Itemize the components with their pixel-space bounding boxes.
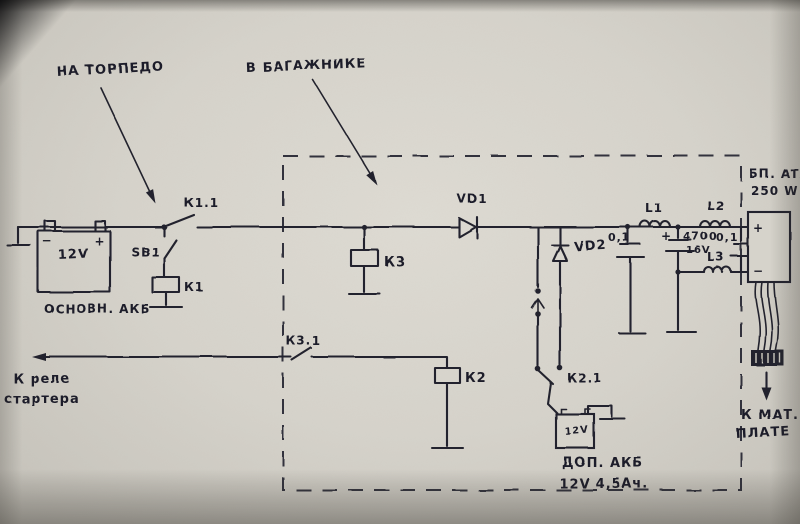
main-battery-label: ОСНОВН. АКБ	[44, 302, 150, 316]
psu-power: 250 W	[751, 184, 798, 198]
contact-k3-1-label: К3.1	[286, 334, 321, 348]
relay-k2-label: К2	[465, 371, 487, 386]
inductor-l3-label: L3	[707, 250, 725, 264]
schematic-photo: − + 12V ОСНОВН. АКБ SB1 К1 К1.1 НА ТОРПЕ…	[0, 0, 800, 524]
psu-plus-terminal: +	[753, 221, 764, 235]
aux-battery-label: ДОП. АКБ	[562, 456, 644, 471]
relay-k3-label: К3	[384, 255, 406, 270]
main-battery-minus-sign: −	[42, 234, 53, 248]
contact-k1-1-label: К1.1	[184, 196, 219, 210]
diode-vd2-label: VD2	[573, 238, 607, 255]
starter-text-line1: К реле	[13, 372, 71, 387]
cap-output-value: 0,1	[716, 231, 739, 244]
diode-vd1-label: VD1	[457, 192, 488, 206]
psu-minus-terminal: −	[753, 264, 764, 278]
aux-battery-rating: 12V 4,5Ач.	[559, 477, 649, 492]
psu-name: БП. ATX	[749, 167, 800, 181]
main-battery-plus-sign: +	[94, 234, 105, 248]
cap-input-value: 0,1	[608, 231, 631, 244]
motherboard-text-line1: К МАТ.	[741, 408, 799, 423]
contact-k2-1-label: К2.1	[567, 371, 602, 385]
inductor-l2-label: L2	[707, 199, 725, 213]
cap-bulk-value: 4700	[683, 230, 718, 243]
schematic-drawing: − + 12V ОСНОВН. АКБ SB1 К1 К1.1 НА ТОРПЕ…	[0, 0, 800, 524]
motherboard-text-line2: ПЛАТЕ	[735, 424, 790, 442]
starter-text-line2: стартера	[4, 392, 80, 407]
switch-sb1-label: SB1	[131, 245, 160, 259]
main-battery-voltage: 12V	[57, 246, 89, 263]
inductor-l1-label: L1	[645, 201, 663, 215]
relay-k1-label: К1	[184, 280, 204, 294]
aux-battery-voltage: 12V	[564, 425, 590, 438]
